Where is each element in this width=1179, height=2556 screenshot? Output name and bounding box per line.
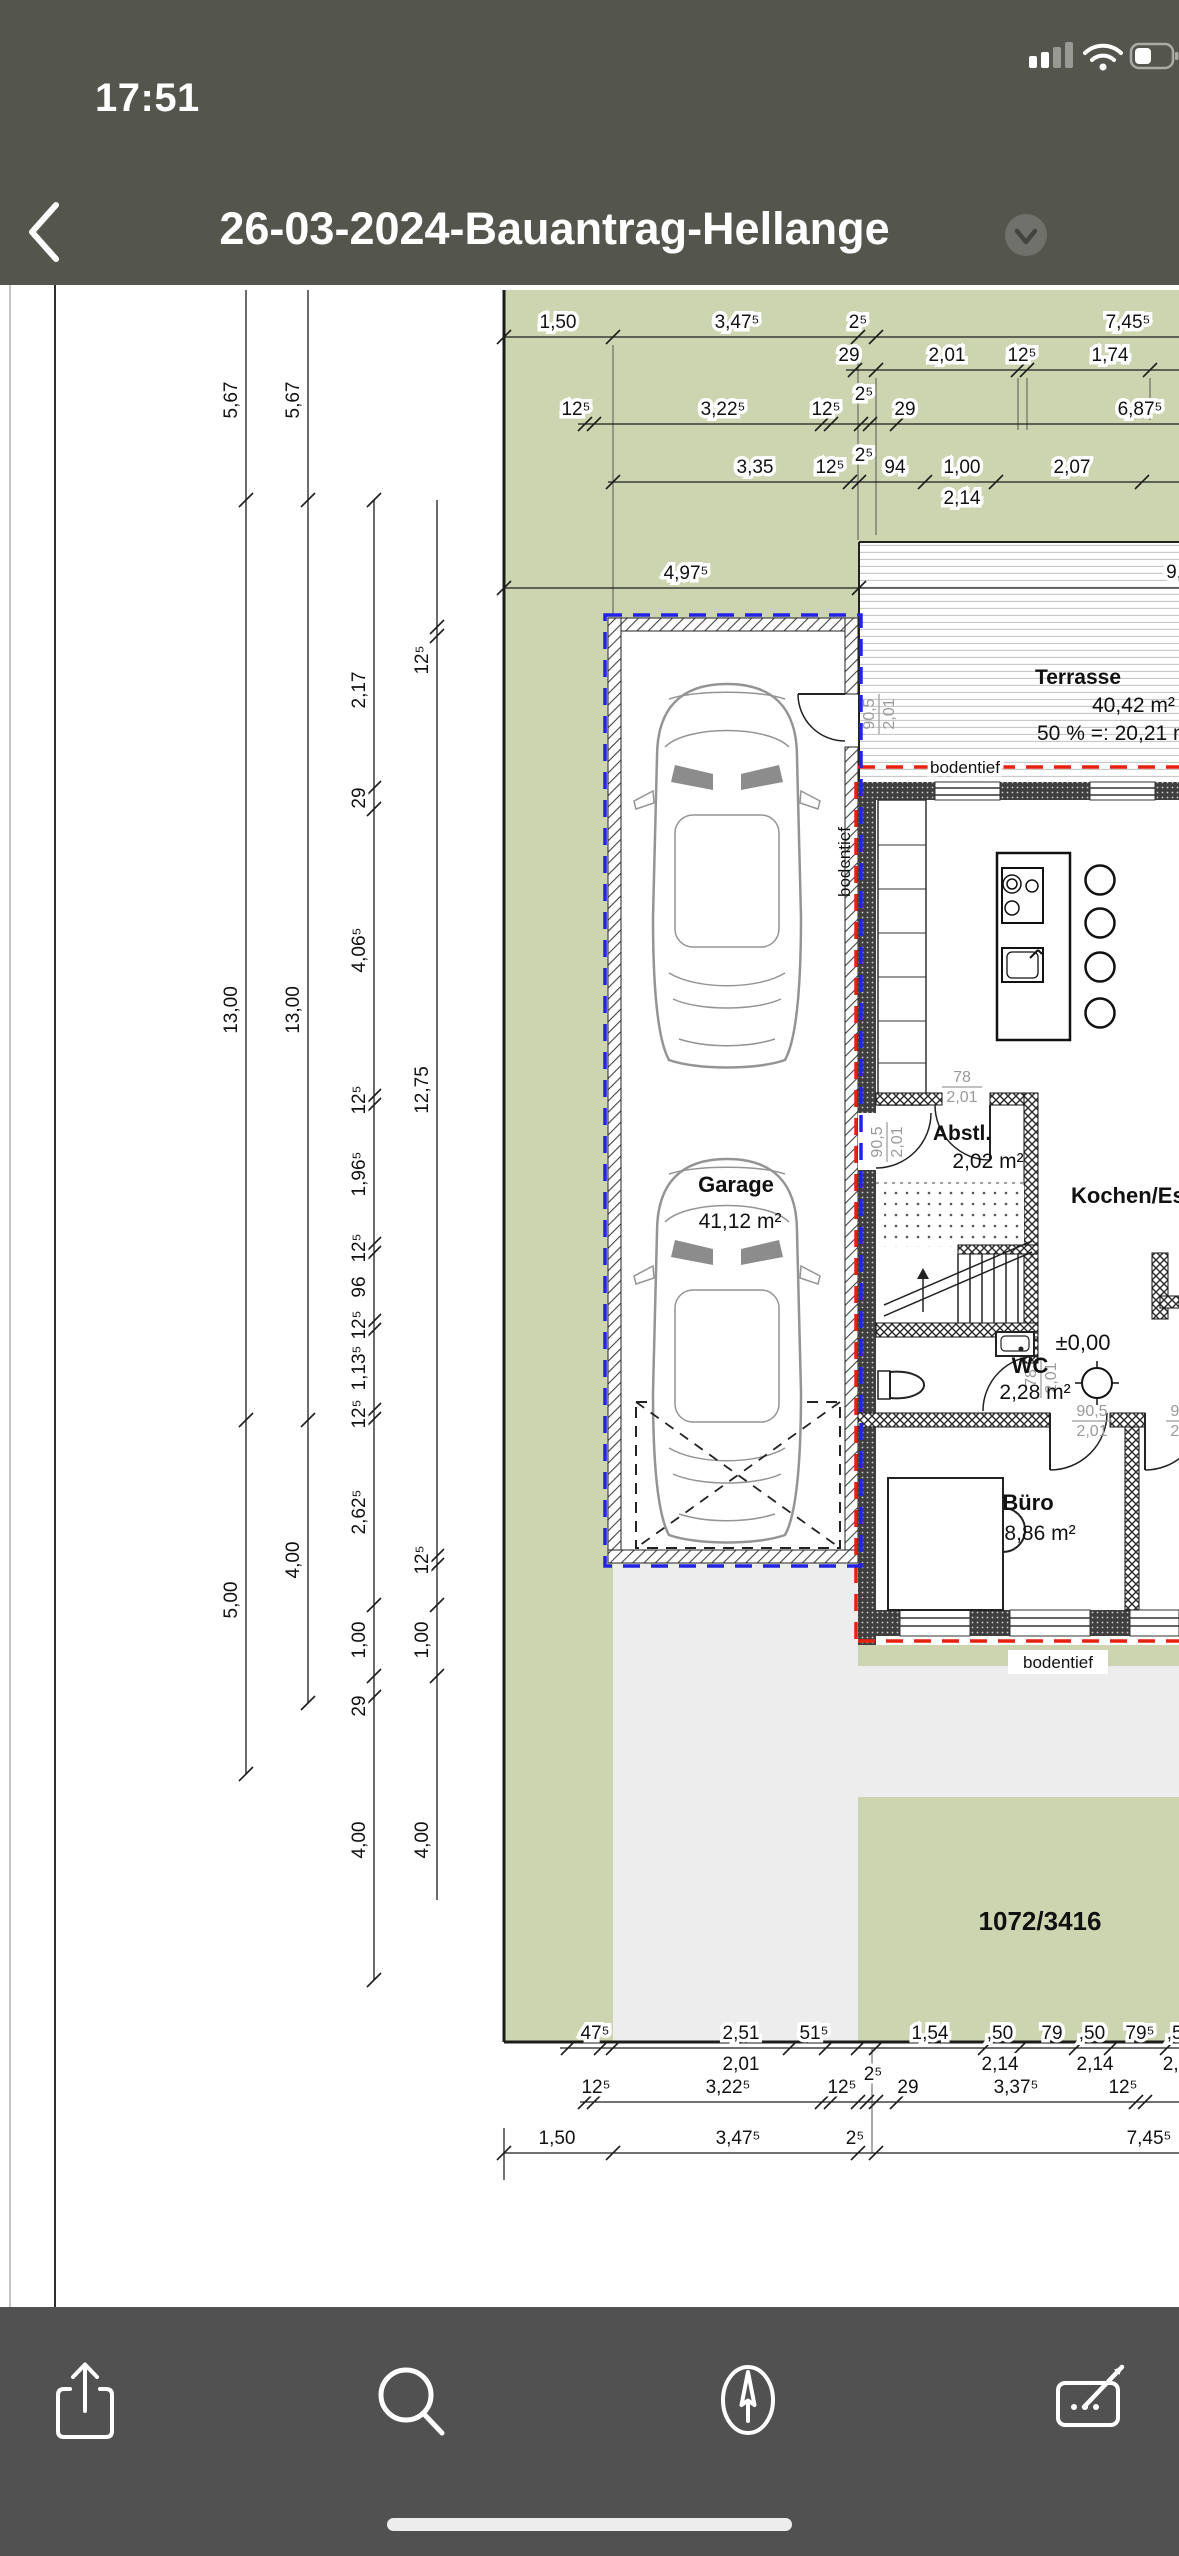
level-mark: ±0,00 [1056,1330,1111,1355]
bodentief-left: bodentief [835,827,854,897]
dim-label: 3,22⁵ [701,399,746,420]
document-title: 26-03-2024-Bauantrag-Hellange [90,203,1019,255]
stair-landing-bar [958,1245,1038,1254]
parcel-number: 1072/3416 [979,1906,1102,1936]
dim-label: ,50 [987,2023,1013,2044]
dim-label: 29 [349,1695,370,1716]
dim-label: 3,35 [737,457,774,478]
toilet-tank [878,1371,890,1399]
door-dim: 2,01 [946,1089,977,1106]
dim-label: 12⁵ [349,1085,370,1114]
dim-label: 1,50 [540,312,577,333]
buero-area: 8,86 m² [1004,1522,1075,1545]
burner-3 [1005,901,1019,915]
share-button[interactable] [30,2347,140,2457]
ios-pdf-viewer: { "status_bar": { "time": "17:51" }, "na… [0,0,1179,2556]
dim-label: 4,97⁵ [664,563,709,584]
driveway [613,1563,858,2042]
dim-label: 12⁵ [1007,345,1036,366]
wc-drain [1019,1347,1024,1352]
dim-label: 2⁵ [846,2128,864,2149]
dim-label: 4,00 [412,1822,433,1859]
dim-label: 12,75 [412,1066,433,1114]
door-hall-left: 90,52,01 [1072,1403,1112,1440]
dim-label: 96 [349,1276,370,1297]
closet-strip [878,800,926,1105]
dim-label: 3,22⁵ [706,2077,751,2098]
battery-icon [1131,44,1179,68]
wall-hall-b [1110,1413,1145,1427]
floorplan-canvas[interactable]: 1,503,47⁵2⁵7,45⁵292,0112⁵1,7412⁵3,22⁵12⁵… [0,285,1179,2307]
dim-sublabel: 2,1 [1163,2054,1179,2075]
markup-pen-icon [723,2367,773,2433]
window-n1 [935,782,1000,800]
menu-circle [1005,214,1047,256]
wc-area: 2,28 m² [999,1381,1070,1404]
dim-label: 1,96⁵ [349,1152,370,1197]
path-band [858,1666,1179,1797]
stool-1 [1086,866,1115,895]
dim-label: 12⁵ [1108,2077,1137,2098]
home-indicator[interactable] [387,2518,792,2531]
bottom-toolbar [0,2307,1179,2556]
room-kochen: Kochen/Essen [1071,1183,1179,1208]
window-s1 [900,1610,970,1636]
dim-label: 5,00 [221,1582,242,1619]
garage-wall-right-a [845,618,858,694]
dim-label: 2,51 [723,2023,760,2044]
garage-area: 41,12 m² [699,1210,782,1233]
stool-3 [1086,953,1115,982]
dim-label: 12⁵ [412,645,433,674]
room-terrasse: Terrasse [1035,666,1121,689]
share-icon [58,2365,112,2438]
dim-label: 2,17 [349,672,370,709]
garage-wall-bottom [608,1550,858,1563]
dim-label: 2,62⁵ [349,1490,370,1535]
dim-label: 5,67 [283,382,304,419]
wifi-icon [1085,46,1121,71]
window-s3 [1130,1610,1179,1636]
dim-label: 1,54 [912,2023,949,2044]
room-abstl: Abstl. [933,1122,991,1145]
door-dim: 78 [953,1069,971,1086]
dim-sublabel: 2,14 [944,488,981,509]
dim-label: 29 [349,787,370,808]
dim-label: 4,00 [349,1822,370,1859]
dim-label: 12⁵ [349,1233,370,1262]
dim-label: 12⁵ [561,399,590,420]
signature-button[interactable] [1036,2347,1146,2457]
dim-label: 13,00 [221,986,242,1034]
door-dim: 2,01 [889,1126,906,1157]
dim-label: 7,45⁵ [1127,2128,1172,2149]
stair-dot-region [884,1185,1024,1247]
garage-wall-top [608,618,858,631]
dim-label: 12⁵ [815,457,844,478]
dim-25c: 2⁵ [864,2064,882,2085]
door-dim: 2,01 [1170,1423,1179,1440]
bodentief-bottom: bodentief [1023,1653,1093,1672]
dim-9: 9, [1166,562,1179,583]
dim-label: 12⁵ [349,1399,370,1428]
wall-right-stub [1160,1296,1179,1308]
dim-label: ,50 [1079,2023,1105,2044]
stool-4 [1086,999,1115,1028]
room-wc: WC [1012,1353,1049,1378]
abstl-area: 2,02 m² [952,1150,1023,1173]
window-n2 [1090,782,1155,800]
dim-label: 29 [894,399,915,420]
dim-label: 12⁵ [412,1545,433,1574]
dim-label: 6,87⁵ [1118,399,1163,420]
dim-label: 1,50 [539,2128,576,2149]
search-icon [381,2370,442,2433]
pdf-page[interactable]: 1,503,47⁵2⁵7,45⁵292,0112⁵1,7412⁵3,22⁵12⁵… [0,285,1179,2307]
dim-label: 2,01 [929,345,966,366]
status-time: 17:51 [95,76,200,121]
dim-label: 12⁵ [811,399,840,420]
door-dim: 90,5 [1170,1403,1179,1420]
dim-sublabel: 2,01 [723,2054,760,2075]
door-abstl-west: 90,52,01 [869,1122,906,1162]
back-button[interactable] [14,197,84,267]
dim-label: 29 [838,345,859,366]
dim-label: 2⁵ [849,312,867,333]
signature-icon [1058,2367,1122,2425]
dim-label: 1,74 [1092,345,1129,366]
dim-label: 12⁵ [827,2077,856,2098]
door-dim: 90,5 [861,698,878,729]
dim-label: 13,00 [283,986,304,1034]
room-garage: Garage [698,1172,774,1197]
dim-label: 12⁵ [349,1310,370,1339]
dim-label: 29 [897,2077,918,2098]
dim-label: 94 [884,457,906,478]
dim-label: 2,07 [1054,457,1091,478]
nav-bar: 26-03-2024-Bauantrag-Hellange [0,185,1179,285]
wall-pillar [1125,1427,1139,1610]
dim-label: 79 [1041,2023,1062,2044]
room-buero: Büro [1002,1490,1053,1515]
terrasse-pct: 50 % =: 20,21 m² [1037,722,1179,745]
dim-sublabel: 2,14 [1077,2054,1114,2075]
dim-label: 47⁵ [580,2023,609,2044]
terrace [859,542,1179,782]
garage-wall-left [608,618,621,1563]
level-circle [1082,1368,1112,1398]
markup-button[interactable] [693,2347,803,2457]
wall-kitchen-abstl-l [876,1093,942,1105]
dim-label: 1,00 [944,457,981,478]
door-dim: 90,5 [869,1126,886,1157]
status-icons [999,0,1179,130]
dim-label: 3,37⁵ [994,2077,1039,2098]
cellular-icon [1029,42,1073,68]
stool-2 [1086,909,1115,938]
door-dim: 90,5 [1076,1403,1107,1420]
dim-label: 4,06⁵ [349,928,370,973]
dim-label: 12⁵ [581,2077,610,2098]
title-menu-button[interactable] [1001,210,1051,260]
burner-2 [1026,880,1038,892]
dim-label: 7,45⁵ [1106,312,1151,333]
dim-label: 4,00 [283,1542,304,1579]
dim-25a: 2⁵ [855,384,873,405]
terrasse-area: 40,42 m² [1092,694,1175,717]
wall-stair-right [1024,1093,1038,1337]
dim-label: 51⁵ [799,2023,828,2044]
dim-label: 1,13⁵ [349,1346,370,1391]
dim-label: 79⁵ [1125,2023,1154,2044]
door-dim: 2,01 [881,698,898,729]
search-button[interactable] [356,2347,466,2457]
wall-right-edge [1152,1253,1168,1319]
dim-label: 1,00 [349,1622,370,1659]
status-nav-bar: 17:51 26-03-2024-Bauantrag-Hellange [0,0,1179,285]
dim-label: 3,47⁵ [716,2128,761,2149]
dim-label: 1,00 [412,1622,433,1659]
chevron-left-icon [32,205,56,259]
car-1 [634,684,820,1068]
dim-sublabel: 2,14 [982,2054,1019,2075]
dim-25b: 2⁵ [855,445,873,466]
window-s2 [1010,1610,1090,1636]
bodentief-top: bodentief [930,758,1000,777]
buero-desk [888,1478,1003,1610]
door-dim: 2,01 [1076,1423,1107,1440]
dim-label: ,50 [1167,2023,1179,2044]
door-terrace: 90,52,01 [861,694,898,734]
wall-hall-a [858,1413,1050,1427]
dim-label: 3,47⁵ [715,312,760,333]
dim-label: 5,67 [221,382,242,419]
